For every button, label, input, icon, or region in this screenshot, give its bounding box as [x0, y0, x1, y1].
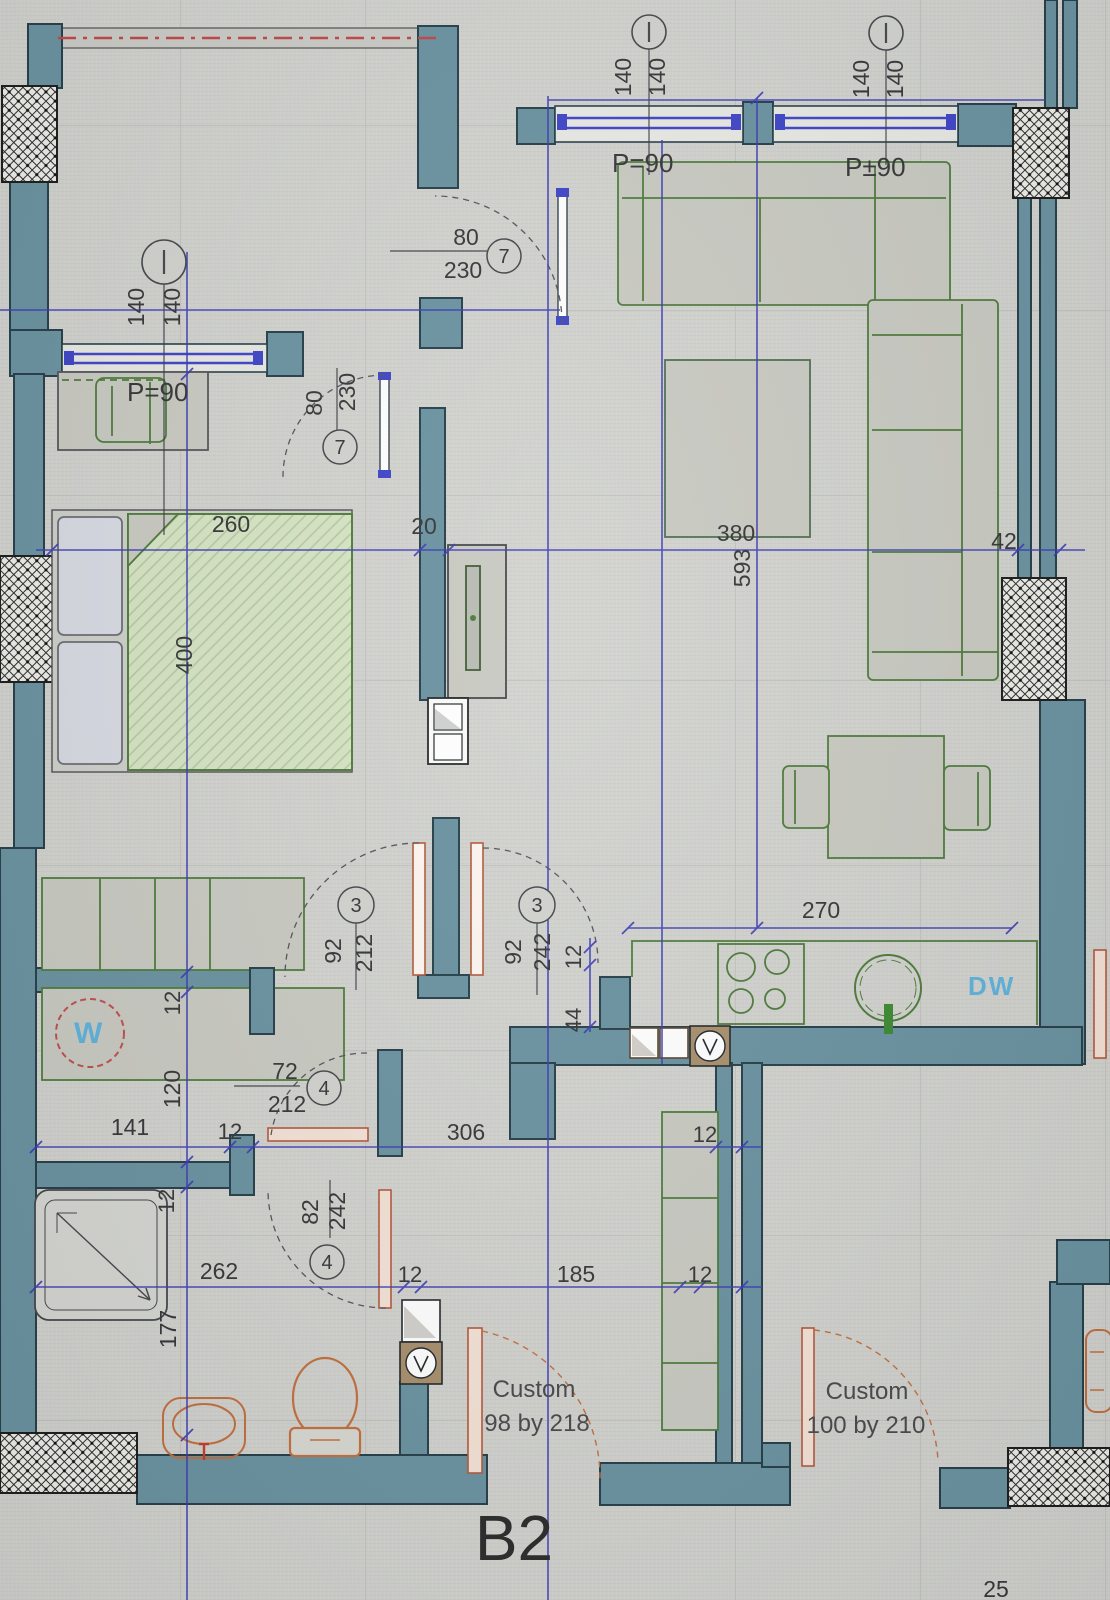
coffee-table [665, 360, 810, 537]
kitchen-sink-icon [855, 955, 921, 1034]
custom-door-label: 100 by 210 [807, 1412, 926, 1439]
door-marker-bedroom: 80 230 7 [301, 368, 360, 464]
bathroom-sink-icon [163, 1398, 245, 1460]
door-width: 80 [453, 224, 479, 250]
pillow [58, 642, 122, 764]
door-tag: 4 [321, 1252, 332, 1274]
toilet-icon [290, 1358, 360, 1456]
window-dim: 140 [610, 58, 636, 96]
door-height: 242 [529, 933, 555, 971]
pillow [58, 517, 122, 635]
bathroom-shaft [400, 1300, 442, 1384]
door-tag: 7 [498, 246, 509, 268]
dim-label: 12 [218, 1119, 242, 1144]
window-dim: 140 [848, 60, 874, 98]
door-tag: 4 [318, 1078, 329, 1100]
door-tag: 3 [350, 895, 361, 917]
door-marker-entry: 80 230 7 [390, 224, 521, 283]
door-width: 82 [297, 1199, 323, 1225]
door-height: 230 [444, 257, 482, 283]
dim-label: 270 [802, 897, 840, 923]
window-living-second [773, 106, 958, 142]
unit-label: B2 [475, 1502, 553, 1574]
floorplan-screenshot: 140 140 140 140 140 140 P=90 P=90 P±90 8… [0, 0, 1110, 1600]
door-height: 230 [334, 373, 360, 411]
dim-label: 12 [154, 1189, 179, 1213]
window-dim: 140 [882, 60, 908, 98]
washer-label: W [74, 1017, 104, 1050]
vent-icon [400, 1342, 442, 1384]
dim-label: 177 [155, 1310, 181, 1348]
dim-label: 141 [111, 1114, 149, 1140]
sofa-horizontal [618, 162, 950, 305]
dim-label: 20 [411, 513, 437, 539]
custom-door-label: Custom [826, 1378, 909, 1405]
custom-door-label: Custom [493, 1376, 576, 1403]
dim-label: 12 [398, 1262, 422, 1287]
door-width: 92 [320, 938, 346, 964]
floorplan-drawing: 140 140 140 140 140 140 P=90 P=90 P±90 8… [0, 0, 1110, 1600]
dim-label: 400 [171, 636, 197, 674]
cooktop-icon [718, 944, 804, 1024]
dim-label: 12 [160, 991, 185, 1015]
door-marker-bath: 82 242 4 [297, 1180, 350, 1279]
door-tag: 3 [531, 895, 542, 917]
dim-label: 12 [693, 1122, 717, 1147]
dim-label: 380 [717, 520, 755, 546]
door-marker-hall-left: 3 92 212 [320, 887, 377, 990]
dim-label: 12 [561, 945, 586, 969]
neighbour-sink-icon [1086, 1330, 1110, 1412]
door-tag: 7 [334, 437, 345, 459]
dim-label: 12 [688, 1262, 712, 1287]
window-dim: 140 [159, 288, 185, 326]
door-width: 92 [500, 939, 526, 965]
dim-label: 120 [159, 1070, 185, 1108]
neighbour-door [1094, 950, 1106, 1058]
dim-label: 44 [561, 1008, 586, 1032]
dim-label: 185 [557, 1261, 595, 1287]
vent-icon [690, 1026, 730, 1066]
dim-label: 25 [983, 1576, 1009, 1600]
shower [35, 1190, 167, 1320]
parapet-label: P=90 [127, 377, 188, 407]
door-width: 80 [301, 390, 327, 416]
custom-door-label: 98 by 218 [484, 1410, 589, 1437]
door-marker-hall-right: 3 92 242 [500, 887, 555, 995]
dining-set [783, 736, 990, 858]
parapet-label: P=90 [612, 148, 673, 178]
dishwasher-label: DW [968, 971, 1015, 1001]
duct-shaft [428, 698, 468, 764]
dim-label: 306 [447, 1119, 485, 1145]
door-height: 242 [324, 1192, 350, 1230]
tv-unit [448, 545, 506, 698]
dim-label: 593 [729, 549, 755, 587]
window-dim: 140 [123, 288, 149, 326]
parapet-label: P±90 [845, 152, 906, 182]
window-dim: 140 [644, 58, 670, 96]
wardrobe [42, 878, 304, 970]
dim-label: 260 [212, 511, 250, 537]
door-height: 212 [351, 934, 377, 972]
dim-label: 262 [200, 1258, 238, 1284]
dim-label: 42 [991, 528, 1017, 554]
door-width: 72 [272, 1058, 298, 1084]
sofa-vertical [868, 300, 998, 680]
door-height: 212 [268, 1091, 306, 1117]
